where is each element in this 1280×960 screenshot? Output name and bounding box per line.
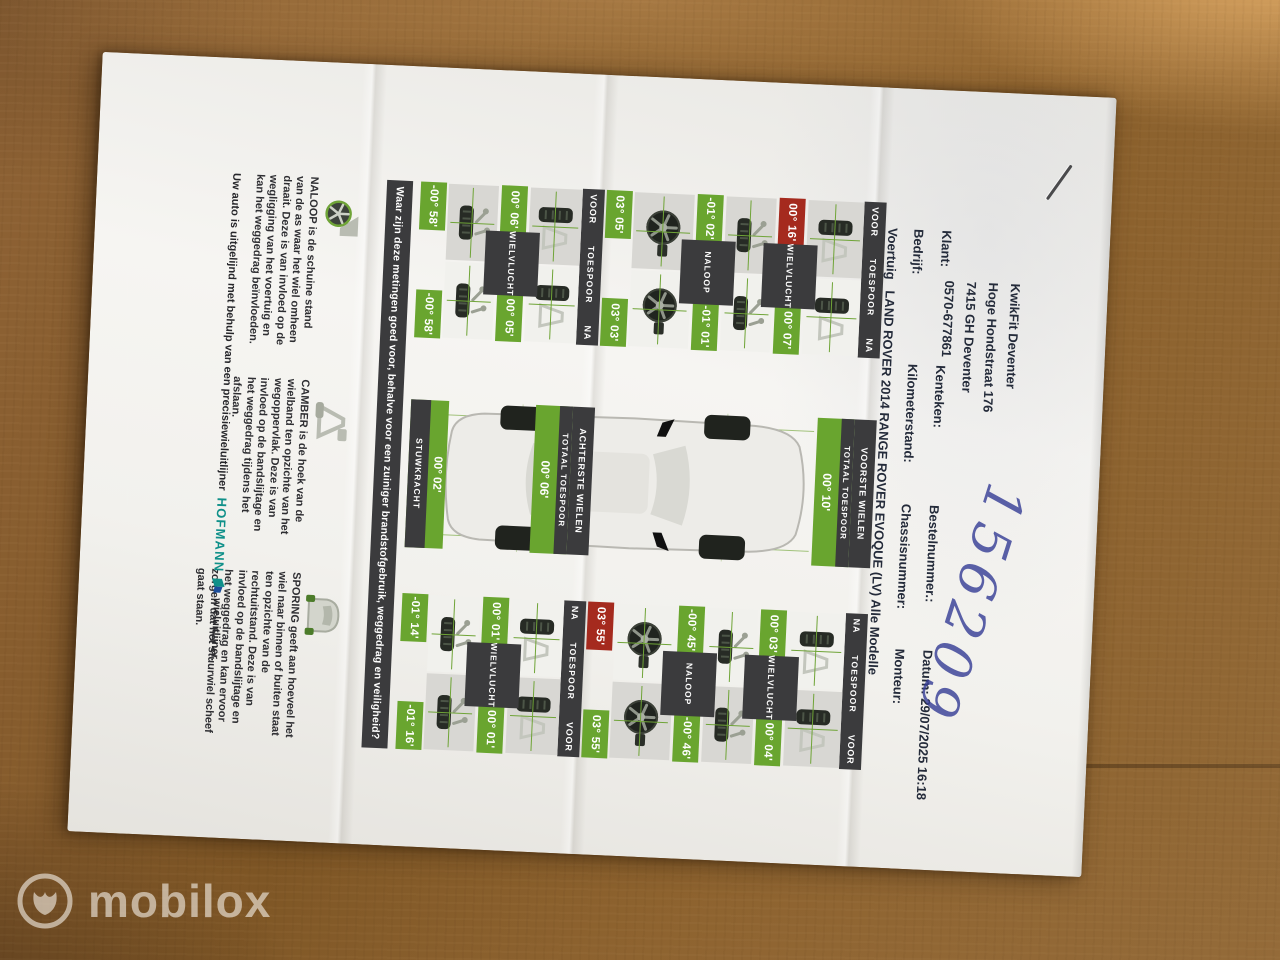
measurement-value: 00° 06' bbox=[500, 185, 528, 234]
alloy-wheel-caster-icon bbox=[645, 210, 681, 257]
alignment-diagram: VOOR TOESPOOR NA 00° 16' WIELVLUCHT 00° … bbox=[393, 181, 886, 770]
measurement-value: 03° 55' bbox=[581, 709, 609, 758]
na-label: NA bbox=[582, 325, 593, 340]
front-left-wheel bbox=[704, 415, 751, 441]
measurement-value: 03° 05' bbox=[605, 190, 633, 239]
na-label: NA bbox=[851, 618, 862, 633]
wielvlucht-label: WIELVLUCHT bbox=[761, 243, 818, 309]
measurement-value: 00° 01' bbox=[481, 597, 509, 646]
rear-total-toe: TOTAAL TOESPOOR 00° 06' bbox=[529, 405, 573, 555]
na-label: NA bbox=[864, 338, 875, 353]
naloop-label: NALOOP bbox=[660, 651, 717, 717]
bestelnummer-label: Bestelnummer.: bbox=[923, 505, 942, 603]
toespoor-label: TOESPOOR bbox=[584, 246, 597, 304]
hofmann-logo-icon bbox=[211, 577, 225, 594]
rear-wheels-title-block: ACHTERSTE WIELEN TOTAAL TOESPOOR 00° 06' bbox=[529, 405, 595, 556]
measurement-value: 00° 05' bbox=[495, 293, 523, 342]
alloy-wheel-caster-icon bbox=[623, 699, 659, 746]
camber-explanation-text: CAMBER is de hoek van de wielband ten op… bbox=[223, 376, 311, 538]
camber-suspension-icon bbox=[314, 402, 348, 441]
alloy-wheel-caster-icon bbox=[641, 288, 677, 335]
measurement-value: 03° 55' bbox=[586, 601, 614, 650]
tire-top-view-icon bbox=[798, 631, 834, 674]
measurement-value: -01° 01' bbox=[691, 302, 719, 351]
wielvlucht-label: WIELVLUCHT bbox=[464, 642, 521, 708]
voor-label: VOOR bbox=[563, 722, 574, 752]
measurement-value: -00° 58' bbox=[414, 289, 442, 338]
kilometerstand-label: Kilometerstand: bbox=[901, 364, 920, 464]
voor-label: VOOR bbox=[845, 735, 856, 765]
front-total-toe: TOTAAL TOESPOOR 00° 10' bbox=[811, 418, 855, 568]
front-right-wheel bbox=[698, 534, 745, 560]
tire-top-view-icon bbox=[534, 285, 570, 328]
stuwkracht-label: STUWKRACHT bbox=[405, 399, 432, 548]
measurement-value: 00° 03' bbox=[759, 609, 787, 658]
sporing-explanation-text: SPORING geeft aan hoeveel het wiel naar … bbox=[187, 568, 303, 745]
tire-top-view-icon bbox=[813, 297, 849, 340]
car-center-panel: VOORSTE WIELEN TOTAAL TOESPOOR 00° 10' bbox=[403, 399, 877, 568]
measurement-value: -01° 14' bbox=[400, 593, 428, 642]
tire-top-view-icon bbox=[537, 207, 573, 250]
car-front-view-icon bbox=[304, 595, 339, 636]
tire-top-view-icon bbox=[515, 696, 551, 739]
tire-top-view-icon bbox=[817, 220, 853, 263]
mobilox-watermark: mobilox bbox=[16, 872, 271, 930]
handwritten-order-number: 156209 bbox=[903, 476, 1038, 732]
stuwkracht-block: 00° 02' STUWKRACHT bbox=[405, 399, 450, 549]
footer-suffix: wieluitlijner. bbox=[209, 598, 224, 661]
left-wheels-panel: VOOR TOESPOOR NA 00° 16' WIELVLUCHT 00° … bbox=[412, 181, 887, 358]
mobilox-logo-icon bbox=[16, 872, 74, 930]
measurement-value: -01° 02' bbox=[696, 194, 724, 243]
measurement-value: 00° 16' bbox=[778, 198, 806, 247]
naloop-caster-icon bbox=[325, 200, 360, 236]
voor-label: VOOR bbox=[869, 207, 880, 237]
measurement-value: 00° 04' bbox=[754, 717, 782, 766]
front-total-value: 00° 10' bbox=[814, 473, 840, 512]
measurement-value: -01° 16' bbox=[395, 701, 423, 750]
monteur-label: Monteur: bbox=[890, 648, 908, 704]
stuwkracht-value: 00° 02' bbox=[427, 456, 447, 493]
tire-top-view-icon bbox=[519, 618, 555, 661]
klant-label: Klant: bbox=[938, 230, 955, 267]
voor-label: VOOR bbox=[587, 194, 598, 224]
wielvlucht-label: WIELVLUCHT bbox=[742, 655, 799, 721]
toespoor-label: TOESPOOR bbox=[848, 655, 861, 713]
voertuig-label: Voertuig bbox=[883, 228, 900, 280]
measurement-value: -00° 58' bbox=[419, 181, 447, 230]
mobilox-wordmark: mobilox bbox=[88, 874, 271, 928]
toespoor-label: TOESPOOR bbox=[866, 259, 879, 317]
wielvlucht-label: WIELVLUCHT bbox=[483, 230, 540, 296]
staple bbox=[1046, 164, 1073, 200]
rear-total-value: 00° 06' bbox=[532, 460, 558, 499]
bedrijf-label: Bedrijf: bbox=[909, 229, 926, 275]
measurement-value: 03° 03' bbox=[600, 298, 628, 347]
naloop-label: NALOOP bbox=[679, 239, 736, 305]
alloy-wheel-caster-icon bbox=[626, 621, 662, 668]
measurement-value: -00° 45' bbox=[677, 606, 705, 655]
alignment-report-paper: KwikFit Deventer Hoge Hondstraat 176 741… bbox=[67, 52, 1116, 877]
car-top-view bbox=[437, 401, 815, 566]
toespoor-label: TOESPOOR bbox=[566, 642, 579, 700]
measurement-value: 00° 01' bbox=[476, 705, 504, 754]
kenteken-label: Kenteken: bbox=[931, 365, 949, 428]
measurement-value: -00° 46' bbox=[672, 713, 700, 762]
right-wheels-panel: NA TOESPOOR VOOR 00° 03' WIELVLUCHT 00° … bbox=[393, 593, 868, 770]
chassisnummer-label: Chassisnummer: bbox=[894, 503, 914, 609]
na-label: NA bbox=[569, 606, 580, 621]
measurement-value: 00° 07' bbox=[773, 306, 801, 355]
tire-top-view-icon bbox=[795, 709, 831, 752]
naloop-explanation-text: NALOOP is de schuine stand van de as waa… bbox=[245, 174, 320, 347]
